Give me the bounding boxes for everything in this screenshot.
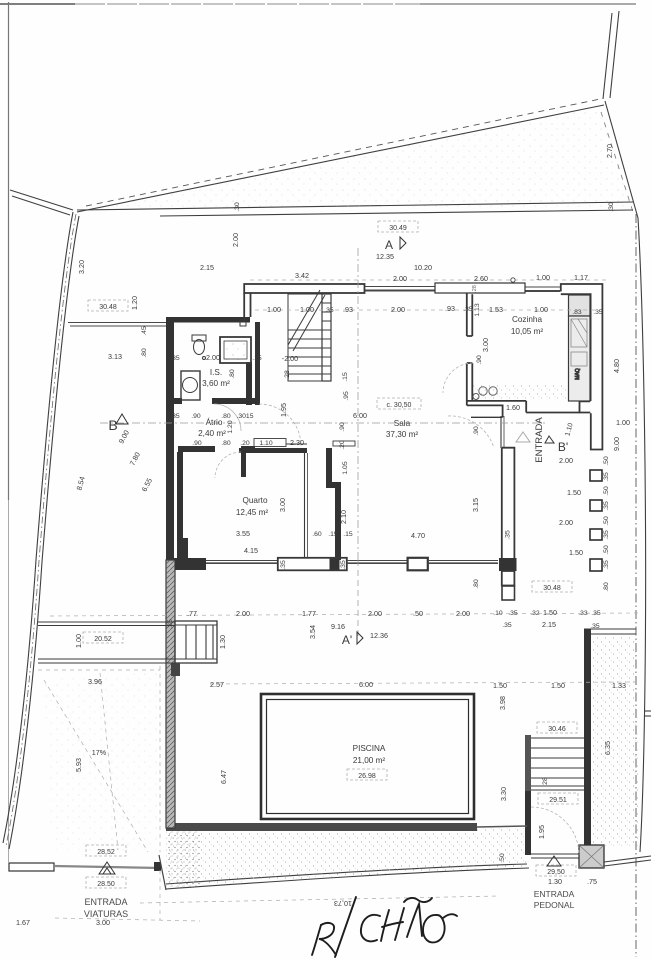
svg-text:.80: .80 <box>221 440 231 447</box>
svg-text:1.77: 1.77 <box>302 609 316 618</box>
svg-text:Cozinha: Cozinha <box>512 315 542 324</box>
svg-text:.90: .90 <box>191 413 201 420</box>
svg-text:10,73: 10,73 <box>334 899 352 908</box>
svg-text:2.00: 2.00 <box>393 274 407 283</box>
svg-text:3.96: 3.96 <box>88 677 102 686</box>
svg-text:.20: .20 <box>240 440 250 447</box>
svg-text:2.15: 2.15 <box>200 263 214 272</box>
svg-text:1.00: 1.00 <box>536 273 550 282</box>
svg-text:3.30: 3.30 <box>499 787 508 801</box>
svg-text:A: A <box>385 238 393 252</box>
svg-text:.93: .93 <box>343 305 353 314</box>
svg-text:.35: .35 <box>170 355 180 362</box>
svg-text:28,52: 28,52 <box>97 849 115 856</box>
svg-text:8.54: 8.54 <box>74 475 86 491</box>
svg-text:c. 30,50: c. 30,50 <box>387 402 412 409</box>
svg-text:1.20: 1.20 <box>130 296 139 310</box>
svg-text:.20: .20 <box>339 440 346 450</box>
svg-text:.35: .35 <box>324 307 334 314</box>
svg-text:ENTRADA: ENTRADA <box>534 889 575 899</box>
svg-text:3,60 m²: 3,60 m² <box>202 379 230 388</box>
svg-text:3.20: 3.20 <box>77 260 86 274</box>
svg-text:6.00: 6.00 <box>353 411 367 420</box>
svg-text:2.00: 2.00 <box>368 609 382 618</box>
svg-text:2.57: 2.57 <box>210 680 224 689</box>
svg-text:.35: .35 <box>603 501 610 511</box>
svg-text:29.51: 29.51 <box>549 797 567 804</box>
svg-text:1.95: 1.95 <box>279 403 288 417</box>
svg-text:.80: .80 <box>473 579 480 589</box>
svg-text:3.00: 3.00 <box>278 498 287 512</box>
svg-text:.50: .50 <box>603 545 610 555</box>
svg-text:.30: .30 <box>234 202 241 212</box>
svg-text:9.00: 9.00 <box>117 429 132 446</box>
svg-text:3.00: 3.00 <box>481 338 490 352</box>
svg-text:Átrio: Átrio <box>206 417 223 427</box>
svg-text:30.46: 30.46 <box>548 726 566 733</box>
svg-text:2.00: 2.00 <box>236 609 250 618</box>
svg-text:21,00 m²: 21,00 m² <box>353 756 386 765</box>
svg-text:.35: .35 <box>590 623 600 630</box>
svg-text:1.00: 1.00 <box>616 418 630 427</box>
svg-text:.75: .75 <box>587 877 597 886</box>
svg-text:1.60: 1.60 <box>506 403 520 412</box>
svg-text:10.20: 10.20 <box>414 263 432 272</box>
svg-text:1.05: 1.05 <box>342 461 349 474</box>
svg-text:.35: .35 <box>603 530 610 540</box>
svg-text:1.00: 1.00 <box>267 305 281 314</box>
svg-text:7.80: 7.80 <box>128 451 143 468</box>
svg-text:2.00: 2.00 <box>391 305 405 314</box>
svg-text:.30: .30 <box>608 202 615 212</box>
svg-text:-2.00: -2.00 <box>282 354 298 363</box>
svg-text:6.35: 6.35 <box>603 741 612 755</box>
svg-text:.35: .35 <box>170 413 180 420</box>
svg-text:.35: .35 <box>463 306 473 313</box>
svg-text:2.00: 2.00 <box>559 518 573 527</box>
svg-text:5.93: 5.93 <box>74 758 83 772</box>
svg-text:.35: .35 <box>340 560 347 570</box>
svg-text:9.16: 9.16 <box>331 622 345 631</box>
svg-text:6.00: 6.00 <box>359 680 373 689</box>
svg-text:3.54: 3.54 <box>308 625 317 639</box>
svg-text:.15: .15 <box>342 372 349 382</box>
svg-text:30.48: 30.48 <box>99 304 117 311</box>
svg-text:.35: .35 <box>280 560 287 570</box>
svg-text:.50: .50 <box>413 609 423 618</box>
svg-text:26.98: 26.98 <box>358 773 376 780</box>
svg-text:2.00: 2.00 <box>206 353 220 362</box>
svg-text:28.50: 28.50 <box>97 881 115 888</box>
svg-text:B: B <box>108 417 117 433</box>
svg-text:.80: .80 <box>603 582 610 592</box>
svg-text:30.48: 30.48 <box>543 585 561 592</box>
svg-text:3.15: 3.15 <box>471 498 480 512</box>
svg-text:3.98: 3.98 <box>498 696 507 710</box>
svg-text:.95: .95 <box>343 391 350 401</box>
svg-text:29,50: 29,50 <box>547 869 565 876</box>
svg-text:1.30: 1.30 <box>218 635 227 649</box>
svg-text:1.50: 1.50 <box>567 488 581 497</box>
svg-text:17%: 17% <box>92 748 107 757</box>
svg-text:2.00: 2.00 <box>456 609 470 618</box>
svg-text:.80: .80 <box>221 413 231 420</box>
svg-text:.15: .15 <box>328 531 338 538</box>
svg-text:Quarto: Quarto <box>242 496 267 505</box>
svg-text:4.70: 4.70 <box>411 531 425 540</box>
svg-text:.3015: .3015 <box>236 413 253 420</box>
svg-text:2.00: 2.00 <box>231 233 240 247</box>
svg-text:1.67: 1.67 <box>16 918 30 927</box>
svg-text:1.10: 1.10 <box>564 422 574 437</box>
svg-text:.50: .50 <box>603 516 610 526</box>
svg-text:.35: .35 <box>502 622 512 629</box>
svg-text:2.15: 2.15 <box>542 620 556 629</box>
svg-text:.15: .15 <box>343 531 353 538</box>
svg-text:3.13: 3.13 <box>108 352 122 361</box>
svg-text:ENTRADA: ENTRADA <box>534 417 545 463</box>
svg-text:.32: .32 <box>530 610 540 617</box>
svg-text:3.00: 3.00 <box>96 918 110 927</box>
svg-text:3.55: 3.55 <box>236 529 250 538</box>
svg-text:.28: .28 <box>542 777 549 787</box>
svg-text:.15: .15 <box>252 355 262 362</box>
svg-text:9.00: 9.00 <box>612 437 621 451</box>
svg-text:.50: .50 <box>603 486 610 496</box>
svg-text:.60: .60 <box>312 531 322 538</box>
svg-text:12.35: 12.35 <box>376 252 394 261</box>
svg-text:VIATURAS: VIATURAS <box>84 909 128 919</box>
svg-text:2.60: 2.60 <box>474 274 488 283</box>
svg-text:.83: .83 <box>572 309 582 316</box>
svg-text:12,45 m²: 12,45 m² <box>236 508 269 517</box>
svg-text:ENTRADA: ENTRADA <box>84 897 127 907</box>
svg-text:3.42: 3.42 <box>295 271 309 280</box>
svg-text:.77: .77 <box>187 609 197 618</box>
svg-text:.35: .35 <box>603 560 610 570</box>
svg-text:.50: .50 <box>499 853 506 863</box>
svg-text:.90: .90 <box>192 440 202 447</box>
svg-text:1.95: 1.95 <box>537 825 546 839</box>
svg-text:1.50: 1.50 <box>543 608 557 617</box>
svg-text:.93: .93 <box>445 304 455 313</box>
svg-text:1.33: 1.33 <box>612 681 626 690</box>
svg-text:2.70: 2.70 <box>605 144 614 158</box>
svg-text:I.S.: I.S. <box>210 368 222 377</box>
svg-text:4.80: 4.80 <box>612 359 621 373</box>
svg-text:12.36: 12.36 <box>370 631 388 640</box>
svg-text:2.10: 2.10 <box>339 510 348 524</box>
svg-text:4.15: 4.15 <box>244 546 258 555</box>
svg-text:1.50: 1.50 <box>551 681 565 690</box>
svg-text:.35: .35 <box>593 309 603 316</box>
svg-text:1.53: 1.53 <box>489 305 503 314</box>
svg-text:B': B' <box>558 440 568 454</box>
svg-text:.33: .33 <box>578 610 588 617</box>
svg-text:1.50: 1.50 <box>493 681 507 690</box>
svg-text:.80: .80 <box>229 369 236 379</box>
svg-text:1.13: 1.13 <box>474 303 481 316</box>
svg-text:6.47: 6.47 <box>219 770 228 784</box>
svg-text:.90: .90 <box>476 355 483 365</box>
svg-text:.90: .90 <box>339 422 346 432</box>
svg-text:MAQ: MAQ <box>575 368 581 380</box>
svg-text:.28: .28 <box>472 285 478 293</box>
svg-text:.35: .35 <box>591 610 601 617</box>
svg-text:PISCINA: PISCINA <box>353 744 386 753</box>
svg-text:.80: .80 <box>141 348 148 358</box>
svg-text:1.00: 1.00 <box>74 634 83 648</box>
svg-text:2.00: 2.00 <box>559 456 573 465</box>
svg-text:.35: .35 <box>167 619 174 629</box>
svg-text:.35: .35 <box>603 472 610 482</box>
svg-text:.90: .90 <box>473 426 480 436</box>
svg-text:2.30: 2.30 <box>290 438 304 447</box>
svg-text:37,30 m²: 37,30 m² <box>386 430 419 439</box>
svg-text:1.30: 1.30 <box>548 877 562 886</box>
svg-text:.50: .50 <box>603 456 610 466</box>
svg-text:.35: .35 <box>505 530 512 540</box>
svg-text:1.20: 1.20 <box>227 420 234 433</box>
svg-text:.28: .28 <box>284 370 291 380</box>
svg-text:20.52: 20.52 <box>94 636 112 643</box>
svg-text:6.55: 6.55 <box>140 477 155 494</box>
svg-text:10,05 m²: 10,05 m² <box>511 327 544 336</box>
svg-text:1.00: 1.00 <box>534 305 548 314</box>
svg-text:.35: .35 <box>508 610 518 617</box>
svg-text:Sala: Sala <box>394 419 411 428</box>
svg-text:A': A' <box>342 633 352 647</box>
svg-text:1.00: 1.00 <box>300 305 314 314</box>
svg-text:30.49: 30.49 <box>389 225 407 232</box>
svg-text:1.17: 1.17 <box>574 273 588 282</box>
svg-text:.45: .45 <box>141 326 148 336</box>
svg-text:1.10: 1.10 <box>259 440 272 447</box>
svg-text:PEDONAL: PEDONAL <box>534 900 575 910</box>
svg-text:1.50: 1.50 <box>569 548 583 557</box>
svg-text:.10: .10 <box>493 610 503 617</box>
svg-text:2,40 m²: 2,40 m² <box>198 429 226 438</box>
